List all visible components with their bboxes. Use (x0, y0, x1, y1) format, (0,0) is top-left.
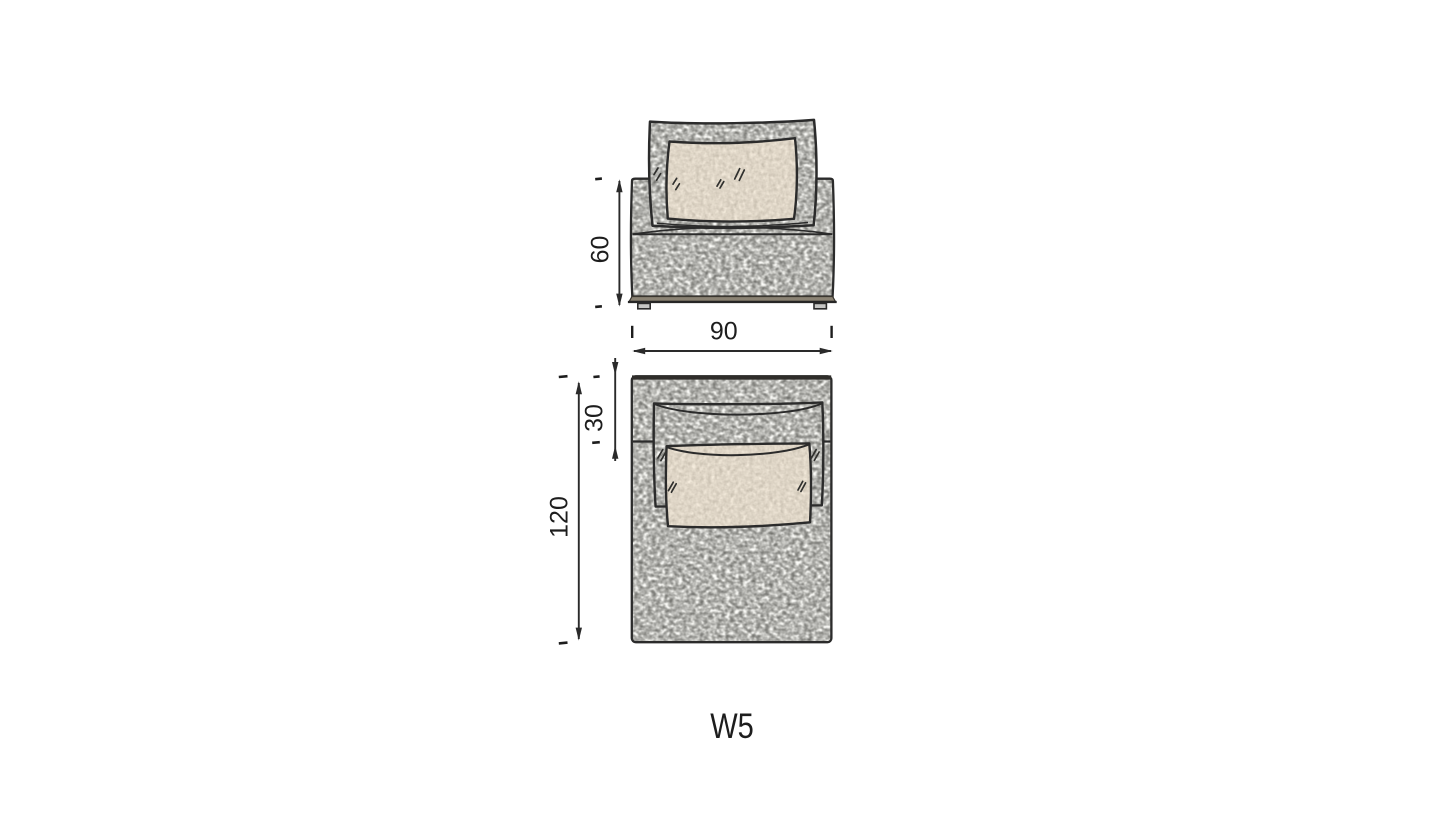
svg-text:90: 90 (710, 318, 738, 346)
svg-text:120: 120 (545, 496, 573, 538)
svg-text:30: 30 (580, 404, 608, 432)
svg-text:W5: W5 (710, 706, 754, 745)
svg-text:60: 60 (587, 236, 615, 264)
